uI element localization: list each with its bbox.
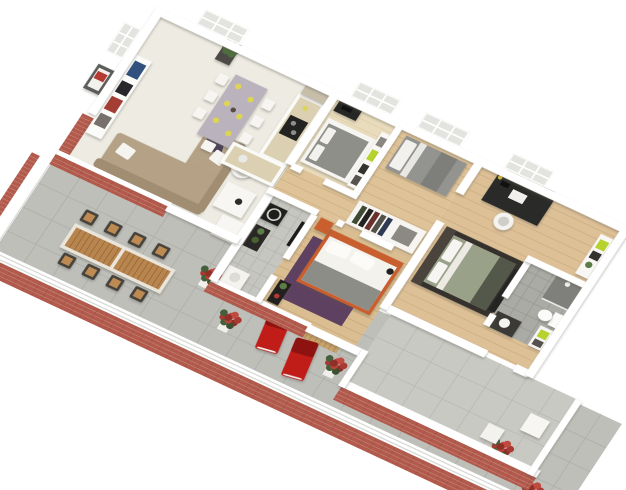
floor-plan-canvas: [0, 0, 626, 490]
floor-plan-scene: [0, 0, 626, 490]
projection-group: [0, 0, 626, 490]
